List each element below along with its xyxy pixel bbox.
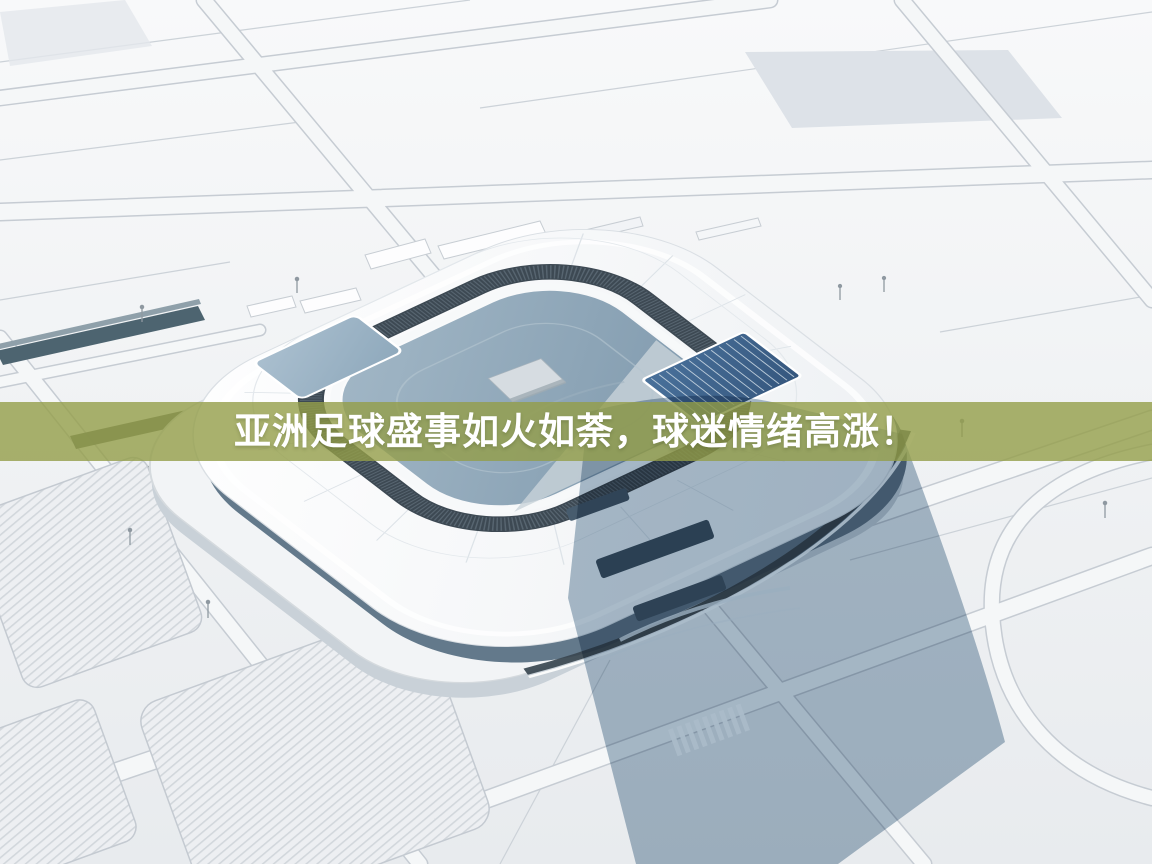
plot-gray-top-right [745, 50, 1062, 128]
headline-text: 亚洲足球盛事如火如荼，球迷情绪高涨！ [234, 413, 918, 450]
headline-banner: 亚洲足球盛事如火如荼，球迷情绪高涨！ [0, 402, 1152, 461]
screenshot-root: 亚洲足球盛事如火如荼，球迷情绪高涨！ [0, 0, 1152, 864]
